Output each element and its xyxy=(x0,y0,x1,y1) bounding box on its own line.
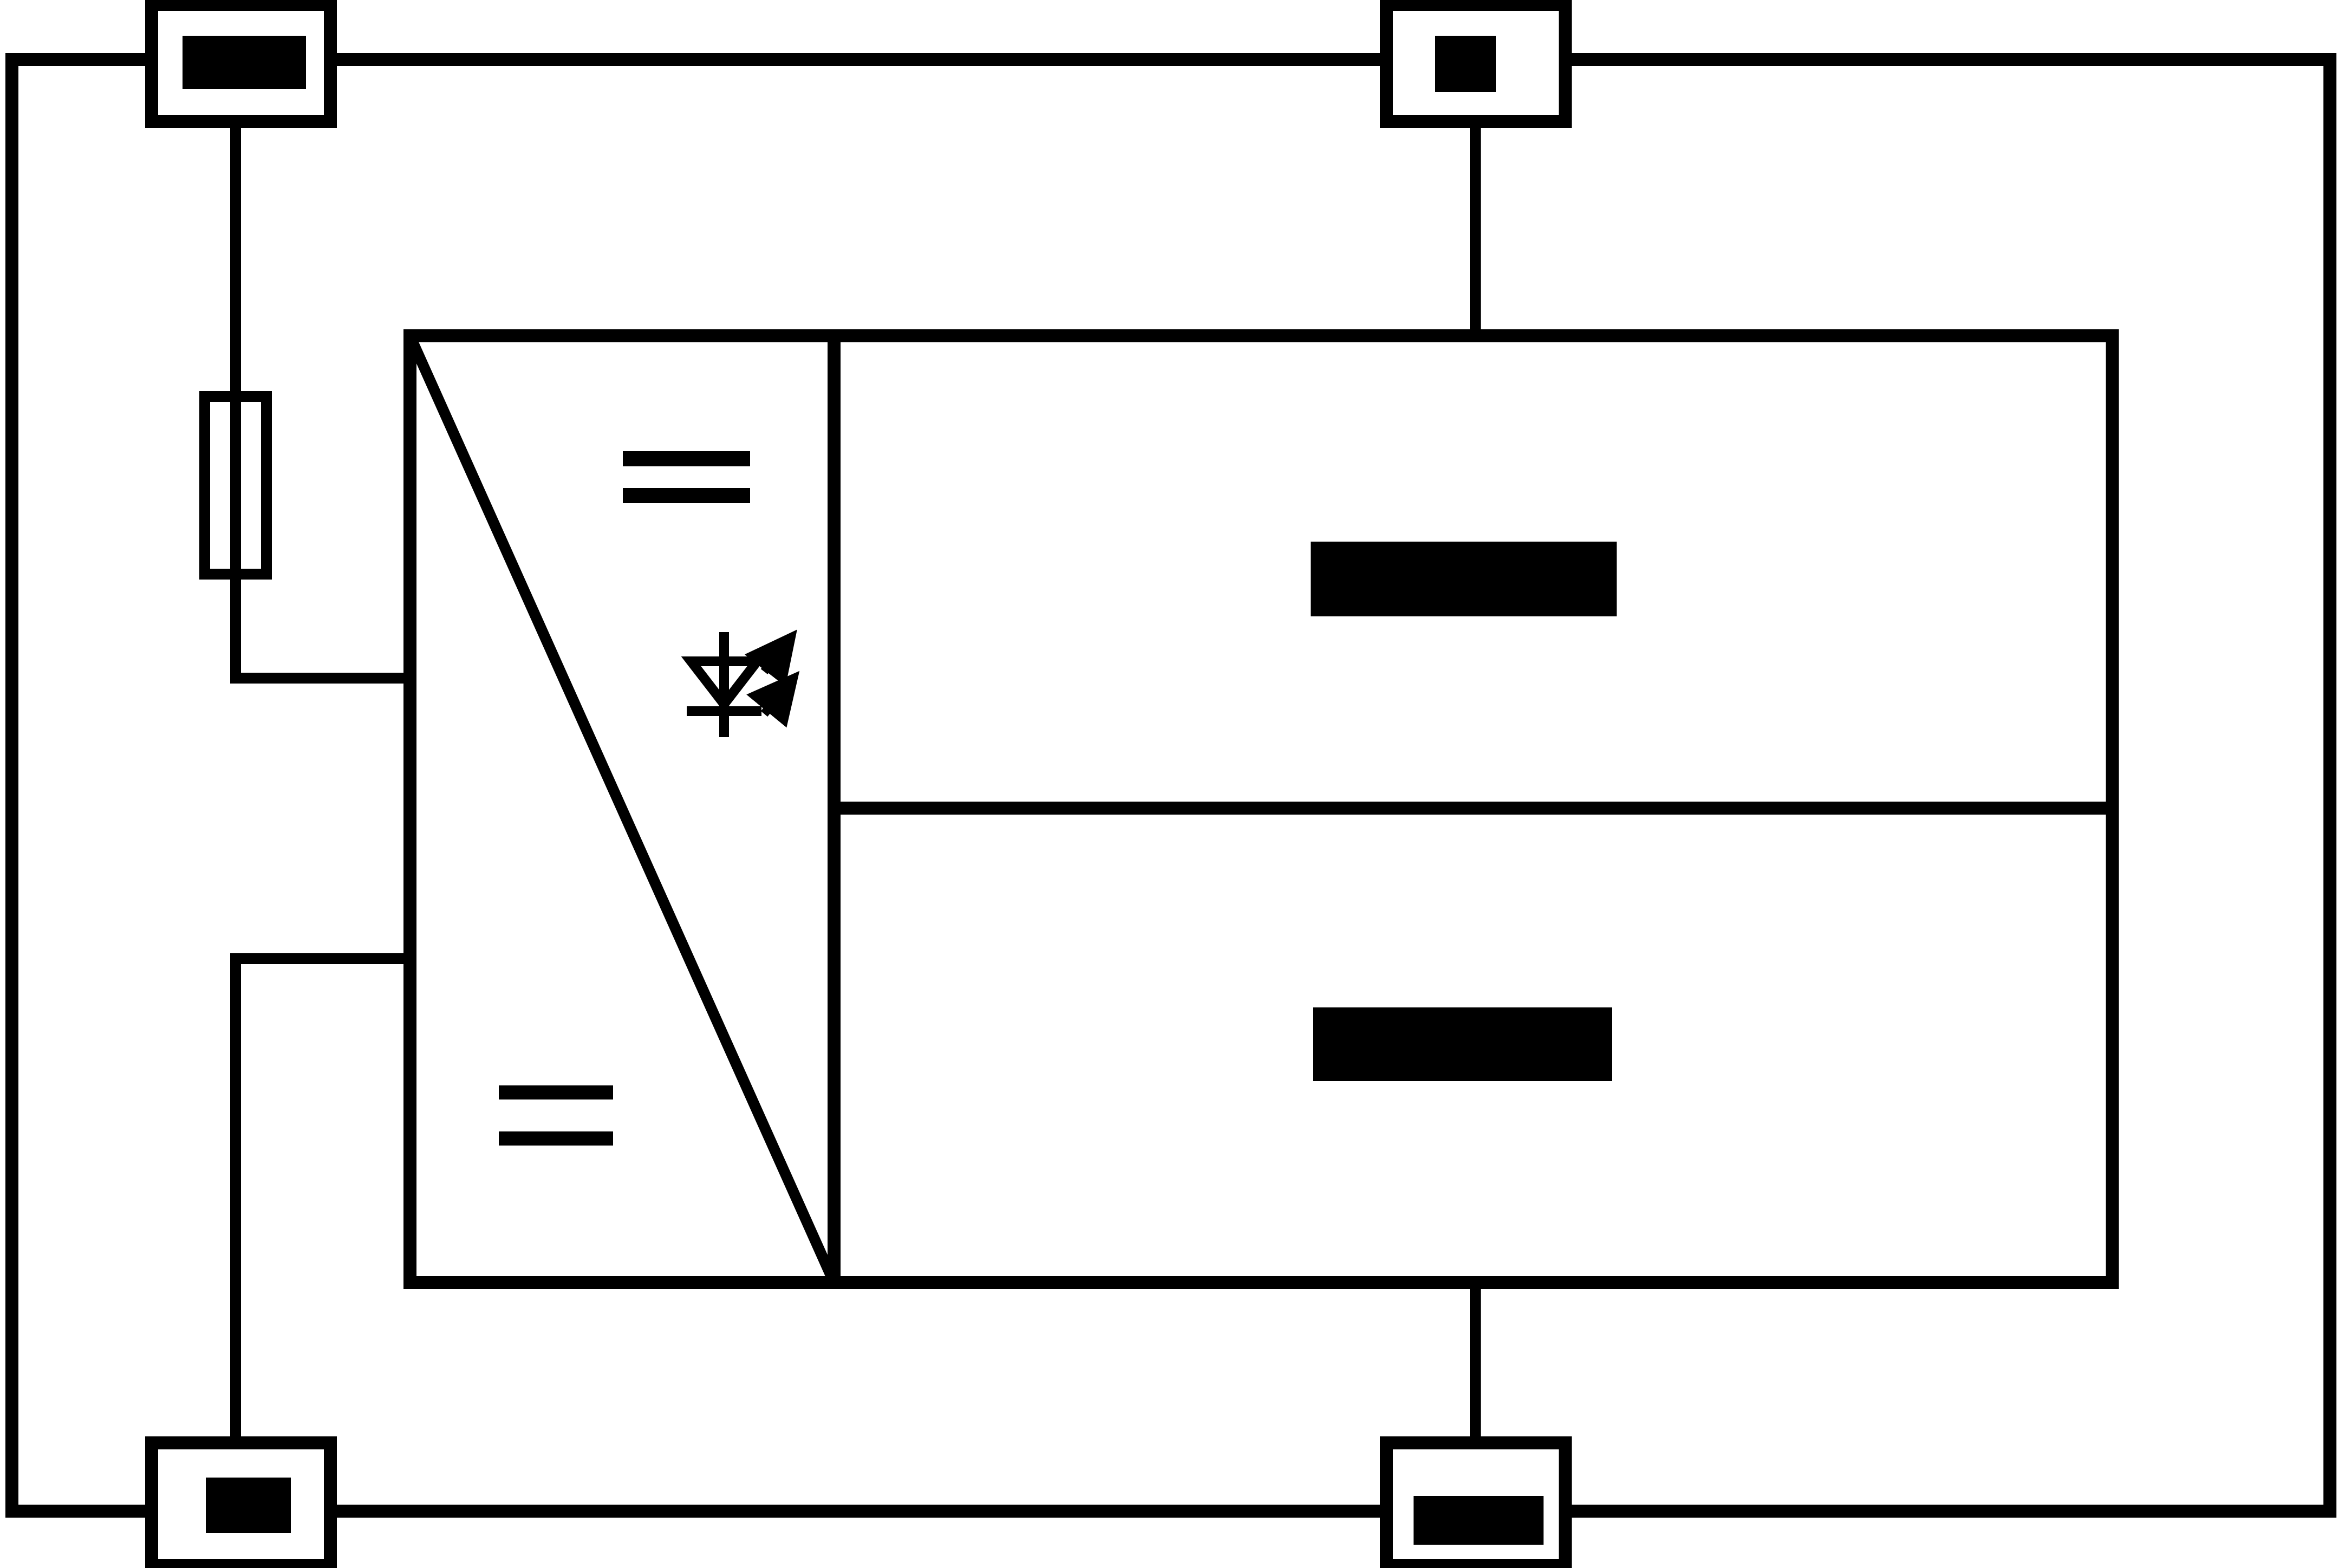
terminal-bottom-center-redacted-label xyxy=(1414,1496,1544,1545)
terminal-top-center-redacted-label xyxy=(1435,36,1496,92)
redacted-label-upper-section xyxy=(1311,542,1617,616)
dc-symbol-output-bar-2 xyxy=(499,1131,613,1146)
dc-symbol-input-bar-2 xyxy=(623,488,750,503)
terminal-top-left-redacted-label xyxy=(183,36,306,89)
dc-symbol-input-bar-1 xyxy=(623,451,750,466)
dc-symbol-output-bar-1 xyxy=(499,1085,613,1099)
schematic-page xyxy=(0,0,2344,1568)
terminal-bottom-left-redacted-label xyxy=(206,1478,291,1533)
schematic-diagram xyxy=(0,0,2344,1568)
redacted-label-lower-section xyxy=(1313,1007,1612,1081)
